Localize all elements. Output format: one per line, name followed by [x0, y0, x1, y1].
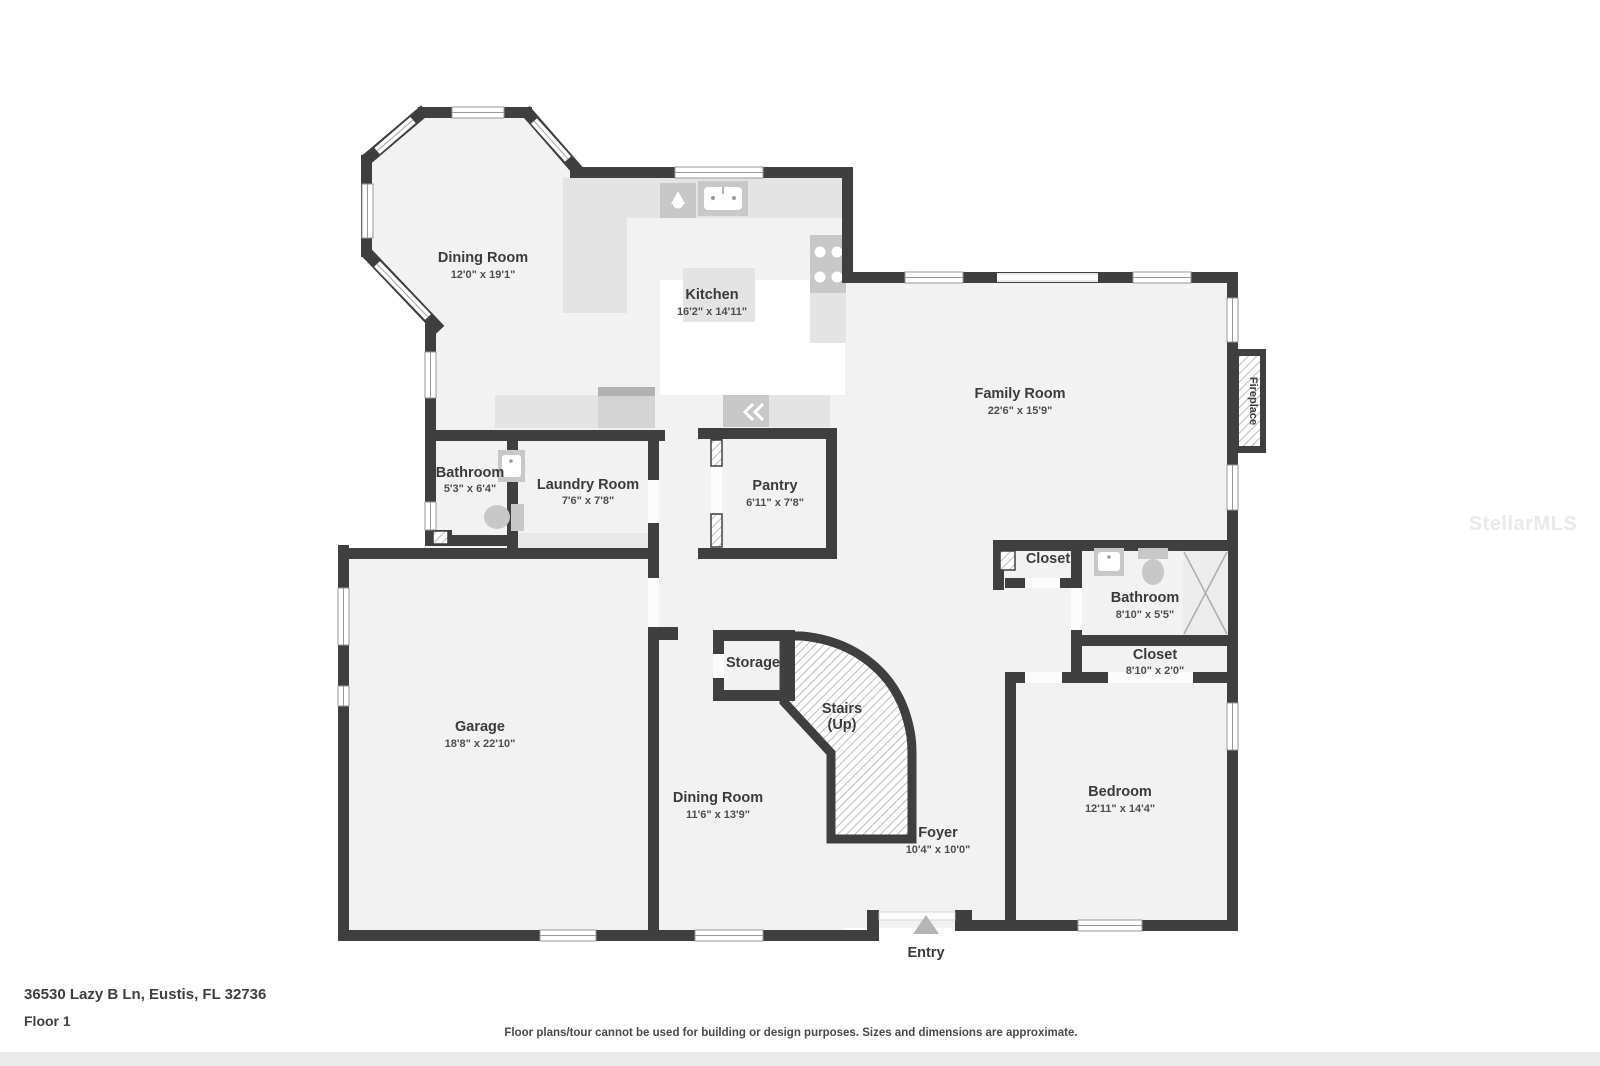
svg-text:Kitchen: Kitchen [685, 287, 738, 303]
room-label-storage: Storage [726, 655, 780, 671]
svg-text:6'11" x 7'8": 6'11" x 7'8" [746, 497, 804, 509]
room-label-closet-hall: Closet [1026, 551, 1070, 567]
room-label-entry: Entry [907, 945, 944, 961]
svg-text:8'10" x 5'5": 8'10" x 5'5" [1116, 609, 1174, 621]
stove-icon [810, 235, 846, 293]
svg-text:Storage: Storage [726, 655, 780, 671]
room-label-dining-bottom: Dining Room 11'6" x 13'9" [673, 790, 763, 821]
svg-text:12'11" x 14'4": 12'11" x 14'4" [1085, 803, 1155, 815]
room-label-kitchen: Kitchen 16'2" x 14'11" [677, 287, 747, 318]
footer-strip [0, 1052, 1600, 1066]
fireplace-label: Fireplace [1247, 377, 1259, 425]
room-label-family: Family Room 22'6" x 15'9" [974, 386, 1065, 417]
svg-text:Foyer: Foyer [918, 825, 958, 841]
toilet-icon [484, 504, 524, 531]
svg-text:Closet: Closet [1026, 551, 1070, 567]
svg-text:Pantry: Pantry [752, 478, 797, 494]
entry-door-opening [879, 912, 955, 920]
address-text: 36530 Lazy B Ln, Eustis, FL 32736 [24, 986, 266, 1003]
watermark: StellarMLS [1469, 513, 1577, 535]
pantry-door-icon [711, 514, 722, 547]
dishwasher-icon [660, 183, 696, 218]
kitchen-counter-left [563, 178, 627, 313]
kitchen-counter-right [810, 293, 846, 343]
disclaimer-text: Floor plans/tour cannot be used for buil… [504, 1027, 1077, 1039]
shower-icon [1183, 551, 1228, 635]
svg-text:5'3" x 6'4": 5'3" x 6'4" [444, 483, 496, 495]
svg-text:Dining Room: Dining Room [673, 790, 763, 806]
room-label-bathroom-right: Bathroom 8'10" x 5'5" [1111, 590, 1179, 621]
svg-text:8'10" x 2'0": 8'10" x 2'0" [1126, 665, 1184, 677]
svg-text:22'6" x 15'9": 22'6" x 15'9" [988, 405, 1053, 417]
svg-text:Entry: Entry [907, 945, 944, 961]
room-label-pantry: Pantry 6'11" x 7'8" [746, 478, 804, 509]
svg-text:Laundry Room: Laundry Room [537, 477, 639, 493]
room-label-bathroom-left: Bathroom 5'3" x 6'4" [436, 465, 504, 495]
svg-text:(Up): (Up) [828, 717, 857, 733]
room-label-dining-top: Dining Room 12'0" x 19'1" [438, 250, 528, 281]
svg-text:11'6" x 13'9": 11'6" x 13'9" [686, 809, 750, 821]
pantry-door-icon [711, 440, 722, 466]
svg-text:10'4" x 10'0": 10'4" x 10'0" [906, 844, 971, 856]
svg-text:Bedroom: Bedroom [1088, 784, 1152, 800]
floor-plan-page: Fireplace Din [0, 0, 1600, 1066]
sink-icon [1094, 548, 1124, 576]
room-label-closet-bedroom: Closet 8'10" x 2'0" [1126, 647, 1184, 677]
svg-text:7'6" x 7'8": 7'6" x 7'8" [562, 495, 614, 507]
room-label-stairs: Stairs (Up) [822, 701, 862, 733]
svg-text:12'0" x 19'1": 12'0" x 19'1" [451, 269, 516, 281]
room-label-garage: Garage 18'8" x 22'10" [445, 719, 516, 750]
svg-text:Bathroom: Bathroom [1111, 590, 1179, 606]
closet-door-icon [1000, 551, 1015, 570]
floor-plan-svg: Fireplace Din [0, 0, 1600, 1066]
floor-label: Floor 1 [24, 1013, 71, 1029]
svg-text:Stairs: Stairs [822, 701, 862, 717]
bathroom-door-icon [433, 531, 448, 544]
room-label-bedroom: Bedroom 12'11" x 14'4" [1085, 784, 1155, 815]
svg-text:Bathroom: Bathroom [436, 465, 504, 481]
fireplace: Fireplace [1233, 349, 1266, 453]
range-appliance-icon [598, 387, 655, 428]
svg-text:Closet: Closet [1133, 647, 1177, 663]
refrigerator-icon [723, 395, 830, 427]
svg-text:16'2" x 14'11": 16'2" x 14'11" [677, 306, 747, 318]
svg-text:Family Room: Family Room [974, 386, 1065, 402]
sink-icon [698, 181, 748, 216]
svg-text:Dining Room: Dining Room [438, 250, 528, 266]
svg-text:Garage: Garage [455, 719, 505, 735]
svg-text:18'8" x 22'10": 18'8" x 22'10" [445, 738, 516, 750]
